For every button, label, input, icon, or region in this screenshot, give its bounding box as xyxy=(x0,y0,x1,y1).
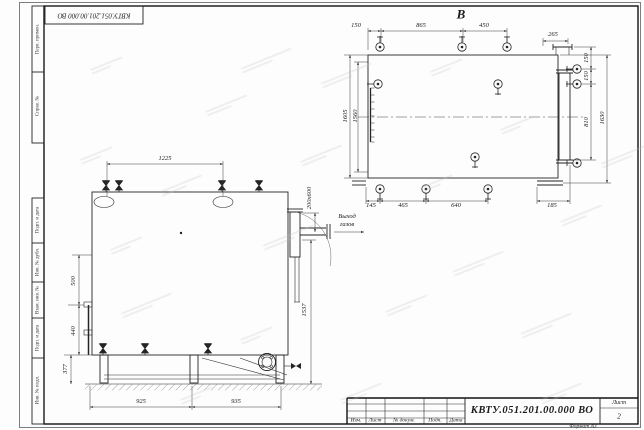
gas-outlet-label-2: газов xyxy=(340,222,354,229)
dim-top-1630: 1630 xyxy=(600,112,607,125)
dim-front-500: 500 xyxy=(71,276,78,286)
dim-top-150-right-mid: 150 xyxy=(584,71,591,81)
dim-top-865: 865 xyxy=(416,23,426,30)
dim-top-1605: 1605 xyxy=(343,110,350,123)
tb-sheet-label: Лист xyxy=(612,400,626,406)
dim-top-465: 465 xyxy=(398,203,408,210)
side-label-inv-dubl: Инв. № дубл. xyxy=(36,248,41,276)
top-view xyxy=(344,28,611,204)
dim-top-150-right-top: 150 xyxy=(584,53,591,63)
dim-front-440: 440 xyxy=(71,326,78,336)
dim-top-450: 450 xyxy=(479,23,489,30)
tb-format: Формат А3 xyxy=(569,424,596,430)
dim-front-377: 377 xyxy=(63,364,70,374)
tb-col-doc: № докум. xyxy=(393,418,415,424)
dim-front-outlet-size: 200х600 xyxy=(307,187,314,209)
top-stamp-number: КВТУ.051.201.00.000 ВО xyxy=(58,12,131,19)
gas-outlet-label-1: Выход xyxy=(338,214,356,221)
dim-front-925: 925 xyxy=(136,399,146,406)
dim-top-1560: 1560 xyxy=(353,110,360,123)
dim-top-265: 265 xyxy=(548,32,558,39)
dim-front-1225: 1225 xyxy=(159,156,172,163)
dim-top-185: 185 xyxy=(547,203,557,210)
side-label-podp1: Подп. и дата xyxy=(36,207,41,234)
dim-front-1537: 1537 xyxy=(302,304,309,317)
drawing-sheet: КВТУ.051.201.00.000 ВО Перв. примен. Спр… xyxy=(0,0,644,430)
side-label-inv-podl: Инв. № подл. xyxy=(36,376,41,405)
tb-col-podp: Подп. xyxy=(428,418,442,424)
dim-front-935: 935 xyxy=(231,399,241,406)
tb-col-list: Лист xyxy=(369,418,382,424)
drawing-canvas xyxy=(0,0,644,430)
tb-doc-number: КВТУ.051.201.00.000 ВО xyxy=(471,406,594,417)
sheet-frame xyxy=(20,3,641,428)
side-label-vzam: Взам. инв. № xyxy=(36,286,41,314)
front-view xyxy=(64,161,364,410)
tb-sheet-number: 2 xyxy=(617,412,621,420)
side-label-perv: Перв. примен. xyxy=(36,24,41,54)
tb-col-data: Дата xyxy=(449,418,462,424)
side-label-podp2: Подп. и дата xyxy=(36,325,41,352)
view-label-B: В xyxy=(457,8,466,21)
dim-top-150-left: 150 xyxy=(351,23,361,30)
dim-top-640: 640 xyxy=(451,203,461,210)
tb-col-izm: Изм. xyxy=(351,418,362,424)
side-label-sprav: Справ. № xyxy=(36,96,41,116)
dim-top-145: 145 xyxy=(366,203,376,210)
dim-top-810: 810 xyxy=(584,117,591,127)
